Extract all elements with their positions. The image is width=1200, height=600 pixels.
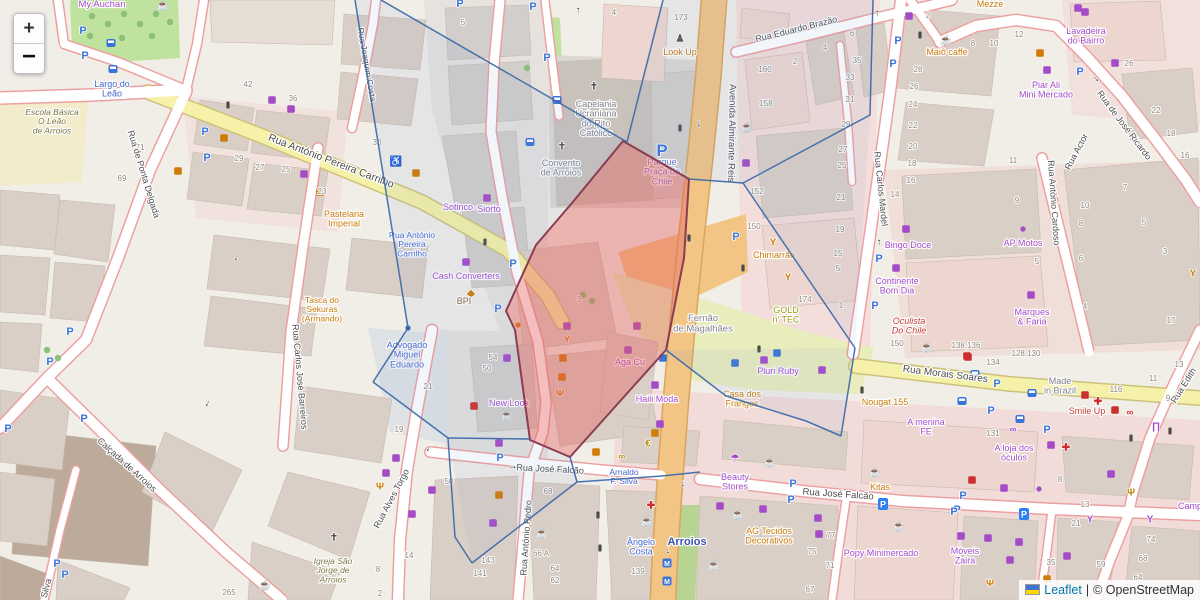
housenumber: 9: [1015, 196, 1020, 205]
umbrella-icon: ☂: [731, 454, 740, 465]
bus-stop-icon: [959, 399, 965, 402]
poi-label: Smile Up: [1069, 406, 1106, 416]
housenumber: 141: [473, 569, 487, 578]
building: [0, 322, 42, 372]
housenumber: 3: [1163, 247, 1168, 256]
housenumber: 68: [1139, 554, 1148, 563]
pharmacy-icon: ✚: [647, 501, 656, 512]
crown-icon: [392, 454, 400, 462]
phone-icon: [408, 510, 416, 518]
map-viewport[interactable]: PPPPPPPPPPPPPPPPPPPPPPPPPPPPPPPPPPMM✚✚✚☕…: [0, 0, 1200, 600]
tree-icon: [121, 11, 127, 17]
poi-label: ArnaldoF. Silva: [609, 467, 639, 486]
glasses-icon: ∞: [1126, 408, 1133, 419]
housenumber: 8: [971, 39, 976, 48]
housenumber: 75: [808, 547, 817, 556]
housenumber: 8: [1058, 475, 1063, 484]
voronoi-vertex-dot: [405, 325, 410, 330]
poi-label: My Auchan: [79, 0, 126, 10]
parking-icon: P: [456, 0, 463, 10]
zoom-control: + −: [13, 13, 45, 74]
housenumber: 116: [1110, 385, 1123, 394]
pet-icon: [1063, 552, 1071, 560]
poi-label: AP Motos: [1004, 238, 1043, 248]
bar-icon: Y: [1147, 515, 1154, 526]
tree-icon: [137, 21, 143, 27]
parking-entrance-icon: P: [1021, 510, 1027, 520]
poi-label: Tasca doSekuras(Armando): [302, 295, 342, 323]
cafe-icon: ☕: [259, 579, 271, 592]
building: [898, 102, 994, 166]
butcher-icon: [428, 486, 436, 494]
parking-icon: P: [950, 506, 957, 518]
poi-label: Lavadeirado Bairro: [1066, 26, 1106, 46]
clothes-icon: [174, 167, 182, 175]
housenumber: 24: [909, 100, 918, 109]
parking-icon: P: [894, 35, 901, 47]
traffic-light-icon: [918, 32, 921, 39]
bakery-icon: [382, 469, 390, 477]
tree-icon: [55, 355, 61, 361]
cafe-icon: ☕: [940, 34, 952, 47]
pharmacy-icon: ✚: [1062, 443, 1071, 454]
clothes-icon: [716, 502, 724, 510]
housenumber: 150: [747, 222, 761, 231]
hairdresser-icon: [1006, 556, 1014, 564]
parking-icon: P: [529, 1, 536, 13]
dentist-icon: [968, 476, 976, 484]
poi-label: GOLDn' TEC: [772, 305, 800, 325]
traffic-light-icon: [1168, 428, 1171, 435]
oneway-arrow-icon: ↑: [877, 237, 882, 248]
cafe-icon: ☕: [708, 559, 720, 572]
housenumber: 138,136: [952, 341, 981, 350]
clinic-icon: [300, 170, 308, 178]
housenumber: 29: [235, 154, 244, 163]
laundry-icon: [1081, 8, 1089, 16]
bakery-icon: [1047, 441, 1055, 449]
church-cross-icon: ✝: [590, 82, 598, 93]
housenumber: 74: [1147, 535, 1156, 544]
tree-icon: [105, 21, 111, 27]
housenumber: 11: [1009, 156, 1018, 165]
traffic-light-icon: [226, 102, 229, 109]
parking-icon: P: [80, 413, 87, 425]
housenumber: 5: [1035, 257, 1040, 266]
bus-stop-icon: [110, 67, 116, 70]
clothes-icon: [220, 134, 228, 142]
housenumber: 13: [1175, 360, 1184, 369]
tree-icon: [89, 13, 95, 19]
bus-stop-icon: [108, 41, 114, 44]
poi-label: Nougat 155: [862, 397, 909, 407]
poi-label: PastelariaImperial: [324, 209, 364, 229]
housenumber: 16: [1181, 151, 1190, 160]
furniture-icon: [984, 534, 992, 542]
bus-stop-icon: [1017, 417, 1023, 420]
parking-icon: P: [889, 58, 896, 70]
parking-icon: P: [1076, 66, 1083, 78]
poi-label: ÂngeloCosta: [627, 537, 655, 557]
poi-label: Arroios: [667, 536, 706, 548]
housenumber: 23: [318, 187, 327, 196]
housenumber: 64: [551, 564, 560, 573]
housenumber: 14: [405, 551, 414, 560]
housenumber: 42: [244, 80, 253, 89]
parking-icon: P: [53, 558, 60, 570]
tree-icon: [524, 65, 530, 71]
basket-icon: [1111, 59, 1119, 67]
housenumber: 11: [1149, 374, 1158, 383]
tree-icon: [44, 347, 50, 353]
housenumber: 4: [1083, 302, 1088, 311]
building: [0, 190, 60, 250]
icecream-icon: [1036, 49, 1044, 57]
traffic-light-icon: [860, 387, 863, 394]
first-aid-icon: [1111, 406, 1119, 414]
poi-label: Kitas: [870, 482, 891, 492]
housenumber: 14: [891, 190, 900, 199]
housenumber: 16: [907, 176, 916, 185]
poi-label: Popy Minimercado: [844, 548, 919, 558]
housenumber: 19: [395, 425, 404, 434]
building: [0, 472, 55, 546]
metro-icon: M: [664, 579, 670, 586]
housenumber: 77: [827, 531, 836, 540]
housenumber: 59: [1097, 560, 1106, 569]
parking-icon: P: [201, 126, 208, 138]
oneway-arrow-icon: ↑: [576, 5, 581, 16]
jewelry-icon: [1015, 538, 1023, 546]
parking-icon: P: [4, 423, 11, 435]
parking-icon: P: [81, 50, 88, 62]
media-icon: [1074, 4, 1082, 12]
bar-icon: Y: [1190, 269, 1197, 280]
car-repair-icon: [1027, 291, 1035, 299]
housenumber: 128,130: [1012, 349, 1041, 358]
voronoi-edge: [448, 438, 530, 439]
housenumber: 10: [1081, 201, 1090, 210]
housenumber: 174: [798, 295, 812, 304]
cart-icon: [892, 264, 900, 272]
zoom-out-button[interactable]: −: [14, 43, 44, 73]
housenumber: 139: [631, 567, 645, 576]
leaflet-link[interactable]: Leaflet: [1044, 583, 1082, 597]
bar-icon: Y: [770, 238, 777, 249]
door-icon: ∏: [1152, 422, 1160, 433]
tree-icon: [167, 19, 173, 25]
hairdresser-icon: [759, 505, 767, 513]
cafe-icon: ☕: [732, 508, 744, 521]
housenumber: 28: [914, 65, 923, 74]
poi-dot-icon: [1020, 226, 1025, 231]
building: [210, 0, 335, 45]
parking-icon: P: [66, 326, 73, 338]
church-cross-icon: ✝: [330, 533, 338, 544]
poi-dot-icon: [1036, 486, 1041, 491]
housenumber: 67: [806, 585, 815, 594]
crown-icon: [905, 12, 913, 20]
housenumber: 26: [1125, 59, 1134, 68]
poi-label: AG TecidosDecorativos: [745, 526, 793, 546]
housenumber: 13: [1081, 500, 1090, 509]
poi-label: OculistaDo Chile: [892, 316, 927, 336]
housenumber: 5: [461, 18, 466, 27]
building: [696, 496, 838, 600]
housenumber: 8: [1079, 219, 1084, 228]
housenumber: 22: [1152, 106, 1161, 115]
osm-link[interactable]: © OpenStreetMap: [1093, 583, 1194, 597]
housenumber: 2: [378, 589, 383, 598]
metro-icon: M: [664, 561, 670, 568]
housenumber: 25: [282, 165, 291, 174]
cafe-icon: ☕: [893, 520, 905, 533]
shop-icon: [656, 420, 664, 428]
parking-icon: P: [987, 405, 994, 417]
car-shop-icon: [287, 105, 295, 113]
housenumber: 143: [481, 556, 495, 565]
cafe-icon: ☕: [921, 341, 933, 354]
housenumber: 17: [1167, 316, 1176, 325]
clothes-icon: [1107, 470, 1115, 478]
housenumber: 18: [908, 159, 917, 168]
glasses-icon: ∞: [618, 452, 625, 463]
poi-label: Bingo Doce: [885, 240, 932, 250]
tree-icon: [87, 33, 93, 39]
bread-icon: [651, 429, 659, 437]
cafe-icon: ☕: [869, 466, 881, 479]
glasses-icon: ∞: [1009, 425, 1016, 436]
housenumber: 4: [612, 8, 617, 17]
housenumber: 7: [1123, 183, 1128, 192]
map-canvas[interactable]: PPPPPPPPPPPPPPPPPPPPPPPPPPPPPPPPPPMM✚✚✚☕…: [0, 0, 1200, 600]
restaurant-icon: Ψ: [376, 482, 384, 493]
laptop-icon: [268, 96, 276, 104]
tree-icon: [119, 35, 125, 41]
traffic-light-icon: [596, 512, 599, 519]
housenumber: 2: [926, 11, 931, 20]
housenumber: 27: [256, 163, 265, 172]
zoom-in-button[interactable]: +: [14, 14, 44, 43]
tree-icon: [149, 33, 155, 39]
clothes-icon: [814, 514, 822, 522]
poi-label: Marques& Faria: [1014, 307, 1050, 327]
cafe-icon: ☕: [764, 456, 776, 469]
tree-icon: [153, 11, 159, 17]
traffic-light-icon: [687, 235, 690, 242]
cart-icon: [902, 225, 910, 233]
parking-icon: P: [1043, 424, 1050, 436]
poi-label: Camp: [1178, 501, 1200, 511]
parking-icon: P: [46, 356, 53, 368]
housenumber: 6: [1079, 254, 1084, 263]
traffic-light-icon: [1129, 435, 1132, 442]
parking-icon: P: [543, 52, 550, 64]
bicycle-icon: [1000, 484, 1008, 492]
parking-icon: P: [787, 494, 794, 506]
parking-icon: P: [875, 253, 882, 265]
oneway-arrow-icon: ↑: [681, 478, 686, 489]
parking-icon: P: [61, 569, 68, 581]
bar-icon: Y: [785, 273, 792, 284]
housenumber: 131: [986, 429, 1000, 438]
poi-label: Madein Brazil: [1044, 376, 1076, 396]
housenumber: 36: [289, 94, 298, 103]
parking-icon: P: [871, 300, 878, 312]
housenumber: 8: [376, 565, 381, 574]
money-icon: €: [645, 439, 651, 450]
parking-icon: P: [732, 231, 739, 243]
cafe-icon: ☕: [536, 527, 548, 540]
housenumber: 5: [1142, 218, 1147, 227]
parking-icon: P: [79, 25, 86, 37]
housenumber: 134: [986, 358, 1000, 367]
cafe-icon: ☕: [157, 0, 169, 12]
housenumber: 62: [551, 576, 560, 585]
housenumber: 22: [909, 121, 918, 130]
poi-label: Maiô caffe: [926, 47, 967, 57]
housenumber: 69: [118, 174, 127, 183]
housenumber: 20: [909, 142, 918, 151]
housenumber: 12: [1015, 30, 1024, 39]
housenumber: 150: [890, 339, 904, 348]
parking-icon: P: [959, 490, 966, 502]
housenumber: 35: [1047, 558, 1056, 567]
parking-entrance-icon: P: [880, 500, 886, 510]
building: [906, 256, 1048, 352]
building: [54, 200, 115, 262]
bus-stop-icon: [1029, 391, 1035, 394]
parking-icon: P: [993, 378, 1000, 390]
housenumber: 66 A: [533, 549, 550, 558]
basket-icon: [1043, 66, 1051, 74]
clothes-icon: [651, 381, 659, 389]
restaurant-icon: Ψ: [1127, 488, 1135, 499]
bar-icon: Y: [1087, 515, 1094, 526]
housenumber: 26: [910, 82, 919, 91]
furniture-icon: [957, 532, 965, 540]
attribution-bar: Leaflet | © OpenStreetMap: [1019, 580, 1200, 600]
shop-icon: [964, 353, 972, 361]
traffic-light-icon: [598, 545, 601, 552]
parking-icon: P: [789, 478, 796, 490]
housenumber: 265: [222, 588, 236, 597]
poi-label: BeautyStores: [721, 472, 750, 492]
poi-label: ContinenteBom Dia: [875, 276, 919, 296]
housenumber: 71: [826, 561, 835, 570]
oneway-arrow-icon: ↑: [875, 8, 880, 19]
poi-label: Mezze: [977, 0, 1004, 9]
housenumber: 10: [990, 39, 999, 48]
dentist-icon: [1081, 391, 1089, 399]
housenumber: 21: [1072, 519, 1081, 528]
poi-label: Haili Moda: [636, 394, 679, 404]
building: [0, 255, 50, 315]
attribution-separator: |: [1086, 583, 1089, 597]
housenumber: 18: [1167, 129, 1176, 138]
clothes-icon: [592, 448, 600, 456]
bottle-icon: [815, 530, 823, 538]
cafe-icon: ☕: [641, 515, 653, 528]
restaurant-icon: Ψ: [986, 579, 994, 590]
traffic-light-icon: [741, 265, 744, 272]
parking-icon: P: [203, 152, 210, 164]
housenumber: 50: [445, 477, 454, 486]
ukraine-flag-icon: [1025, 584, 1040, 595]
